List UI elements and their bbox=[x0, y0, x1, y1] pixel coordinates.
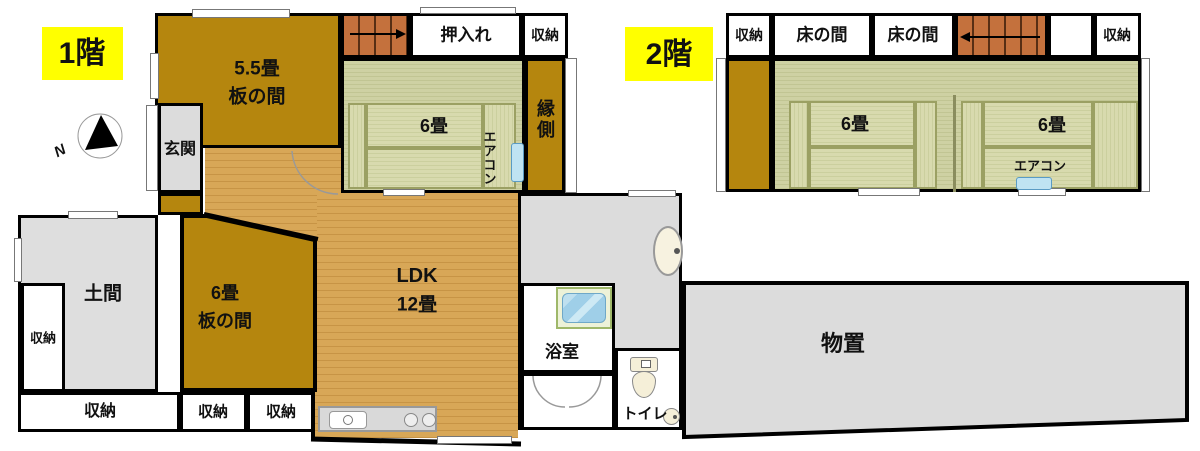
window-mark bbox=[420, 7, 516, 14]
floor2-tag-label: 2階 bbox=[646, 40, 693, 70]
window-mark bbox=[858, 188, 920, 196]
closet-shuno-left-label: 収納 bbox=[30, 332, 56, 345]
room-divider bbox=[953, 95, 956, 192]
itanoma-strip-2f bbox=[726, 58, 772, 192]
floor1-tag-label: 1階 bbox=[59, 39, 106, 69]
aircon-label-2f: エアコン bbox=[1014, 160, 1066, 173]
stairs-2f bbox=[955, 13, 1048, 58]
compass-north-letter: N bbox=[52, 142, 69, 160]
window-mark bbox=[68, 211, 118, 219]
window-mark bbox=[437, 436, 512, 444]
tokonoma-alcove-1-label: 床の間 bbox=[797, 27, 848, 44]
room-itanoma-6-label: 板の間 bbox=[198, 312, 252, 330]
sliding-door-mark bbox=[383, 189, 425, 196]
stairs-1f bbox=[341, 13, 410, 58]
door-arc bbox=[292, 151, 338, 194]
window-mark bbox=[565, 58, 577, 193]
bathtub-icon bbox=[556, 287, 612, 329]
room-itanoma-6-size: 6畳 bbox=[211, 284, 239, 302]
closet-shuno-bottom-3-label: 収納 bbox=[266, 405, 296, 420]
closet-shuno-2f-right-label: 収納 bbox=[1103, 28, 1131, 42]
kitchen-counter bbox=[318, 406, 437, 432]
room-tatami-2f-right-label: 6畳 bbox=[1038, 116, 1066, 134]
air-conditioner-unit-1f bbox=[511, 143, 524, 182]
aircon-label-1f: エアコン bbox=[483, 130, 496, 186]
room-toilet-label: トイレ bbox=[622, 407, 667, 422]
room-ldk-label: LDK bbox=[396, 266, 437, 286]
room-monooki-label: 物置 bbox=[821, 333, 865, 355]
air-conditioner-unit-2f bbox=[1016, 177, 1052, 190]
room-tatami-2f-left-label: 6畳 bbox=[841, 115, 869, 133]
room-ldk-size: 12畳 bbox=[397, 296, 437, 315]
compass-north-icon bbox=[78, 114, 122, 158]
tokonoma-alcove-2-label: 床の間 bbox=[888, 27, 939, 44]
toilet-tank-icon bbox=[630, 357, 658, 372]
room-itanoma-5-5-label: 板の間 bbox=[228, 88, 285, 107]
genkan-step bbox=[158, 193, 203, 215]
window-mark bbox=[150, 53, 159, 99]
sink-drain-icon bbox=[343, 415, 353, 425]
room-washroom bbox=[521, 373, 615, 430]
closet-shuno-2f-left-label: 収納 bbox=[735, 28, 763, 42]
window-mark bbox=[192, 9, 290, 18]
engawa-label: 縁側 bbox=[536, 99, 554, 141]
window-mark bbox=[628, 190, 676, 197]
room-itanoma-5-5-size: 5.5畳 bbox=[234, 60, 279, 79]
room-itanoma-6-shape bbox=[182, 216, 315, 390]
floor-plan: 1階 2階 5.5畳 板の間 押入れ 収納 6畳 エアコン 縁側 玄関 LDK … bbox=[0, 0, 1200, 451]
room-monooki-shape bbox=[684, 283, 1187, 437]
room-bath-label: 浴室 bbox=[545, 344, 579, 361]
stove-burner-icon bbox=[422, 413, 436, 427]
closet-shuno-bottom-1-label: 収納 bbox=[84, 404, 116, 420]
tatami-area-2f bbox=[772, 58, 1141, 192]
washbasin-icon bbox=[653, 226, 683, 276]
window-mark bbox=[1141, 58, 1150, 192]
closet-oshiire-label: 押入れ bbox=[441, 27, 492, 44]
genkan-label: 玄関 bbox=[164, 142, 196, 158]
room-tatami-6-1f-label: 6畳 bbox=[420, 117, 448, 135]
window-mark bbox=[14, 238, 22, 282]
closet-shuno-top-label: 収納 bbox=[531, 28, 559, 42]
diagonal-wall bbox=[204, 214, 318, 239]
window-mark bbox=[716, 58, 726, 192]
room-ldk bbox=[314, 193, 518, 438]
stove-burner-icon bbox=[404, 413, 418, 427]
entrance-door-mark bbox=[146, 105, 158, 191]
empty-box-2f bbox=[1048, 13, 1094, 58]
wall-segment bbox=[311, 238, 315, 438]
closet-shuno-bottom-2-label: 収納 bbox=[198, 405, 228, 420]
room-doma-label: 土間 bbox=[84, 285, 122, 304]
